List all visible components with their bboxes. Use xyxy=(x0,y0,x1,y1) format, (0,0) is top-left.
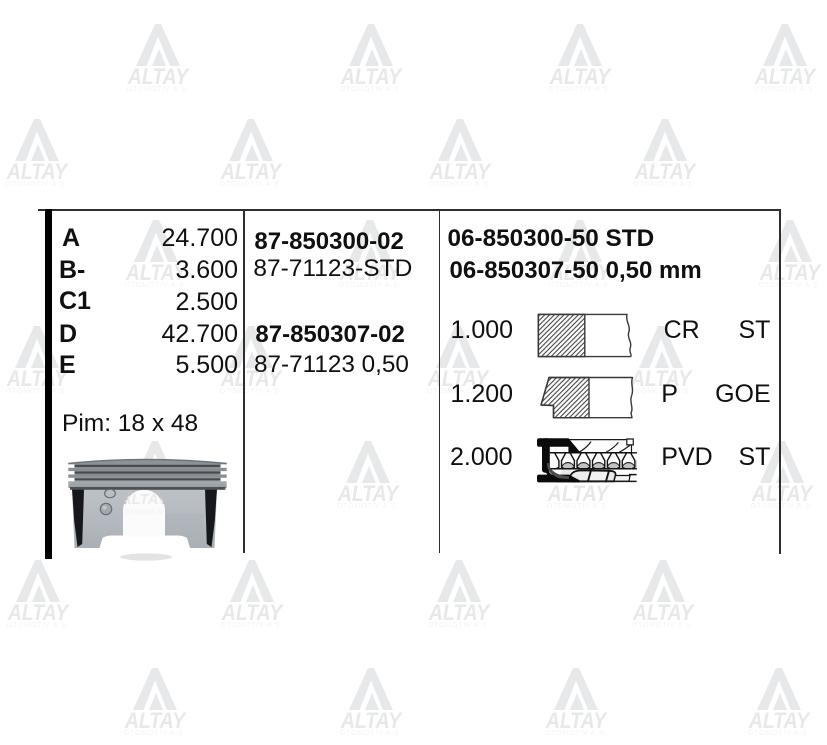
svg-text:OTOMOTiV: OTOMOTiV xyxy=(124,510,163,516)
